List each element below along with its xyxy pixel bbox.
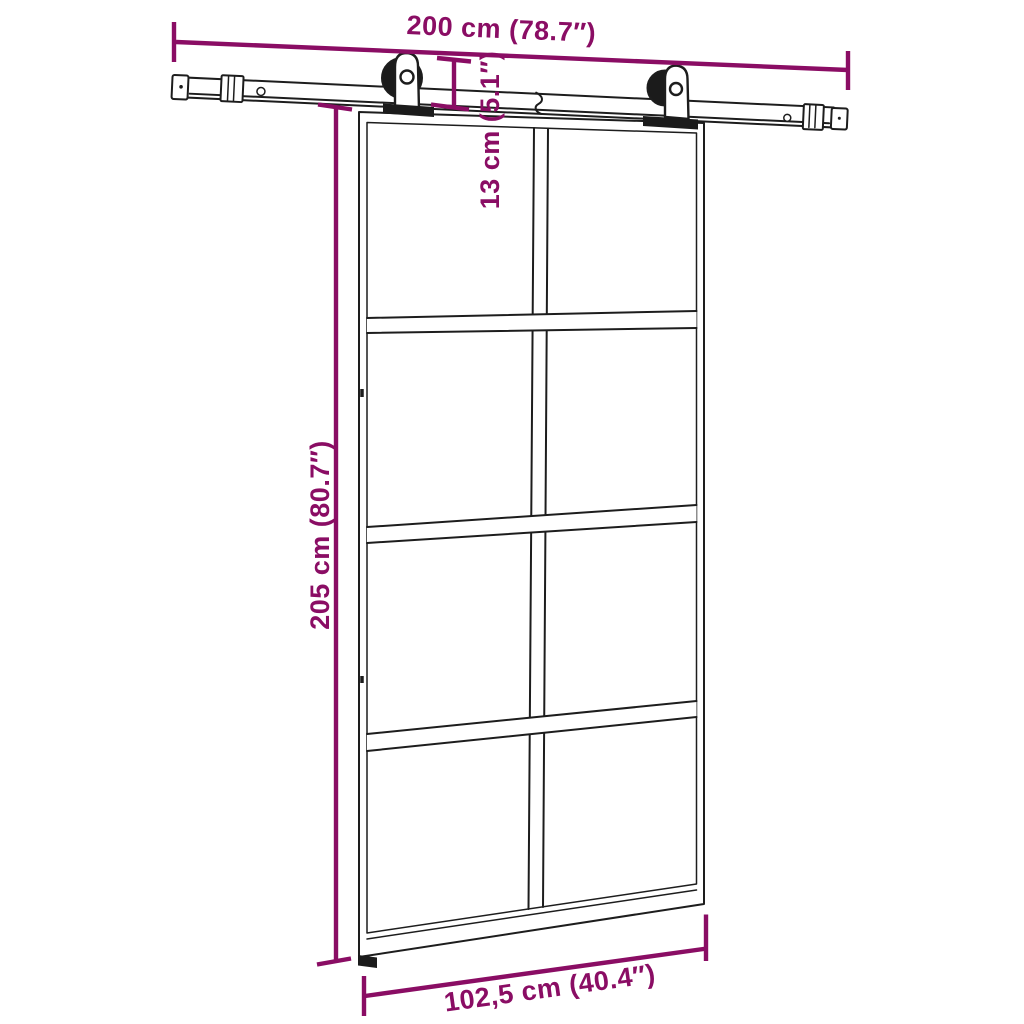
rail-mount-hole-left (257, 87, 265, 95)
dimension-cap-bottom (317, 959, 351, 965)
axle-bolt (670, 83, 682, 95)
dimension-line (176, 42, 848, 70)
rail-spacer-left (220, 75, 243, 102)
hardware-height-label: 13 cm (5.1″) (475, 51, 505, 210)
rail-spacer-right (803, 104, 824, 130)
axle-bolt (401, 71, 414, 84)
door-height-label: 205 cm (80.7″) (305, 440, 335, 630)
rail-mount-hole-right (784, 114, 791, 121)
roller-hanger-right (643, 66, 698, 130)
floor-guide (358, 955, 377, 968)
sliding-door (358, 112, 704, 968)
door-width-label: 102,5 cm (40.4″) (442, 959, 657, 1018)
spacer-ridge (815, 106, 816, 128)
dimension-rail-width: 200 cm (78.7″) (174, 10, 848, 90)
rail-width-label: 200 cm (78.7″) (406, 10, 597, 48)
diagram-canvas: 200 cm (78.7″) 13 cm (5.1″) 205 cm (80.7… (0, 0, 1024, 1024)
spacer-ridge (809, 105, 810, 127)
sliding-door-diagram: 200 cm (78.7″) 13 cm (5.1″) 205 cm (80.7… (0, 0, 1024, 1024)
roller-hanger-left (382, 53, 434, 117)
dimension-cap-top (437, 58, 471, 62)
dimension-door-height: 205 cm (80.7″) (305, 105, 352, 965)
